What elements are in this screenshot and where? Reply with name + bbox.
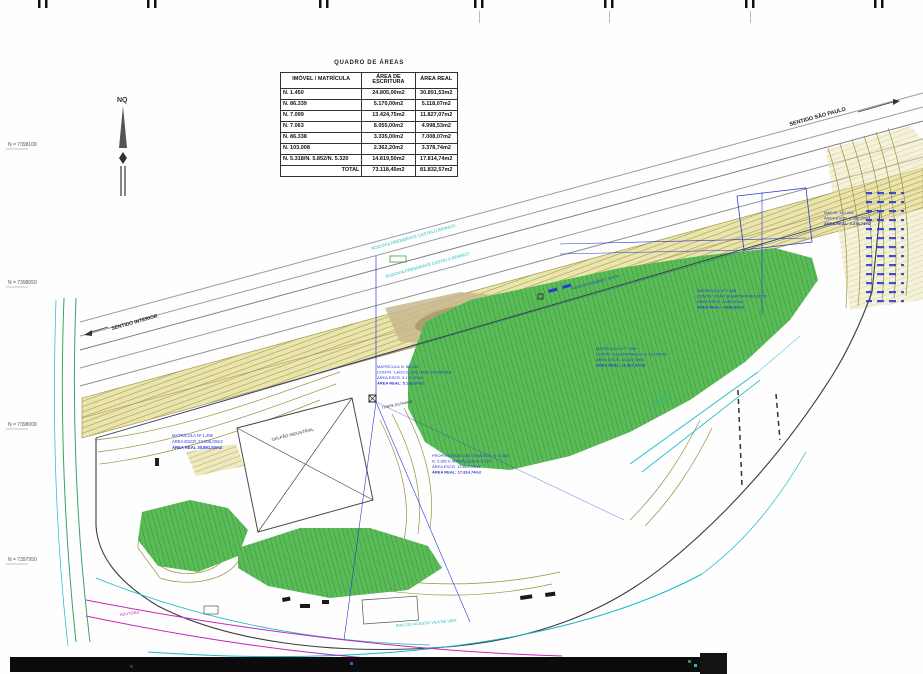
cell-area-real: 11.827,07m2	[415, 110, 458, 121]
cell-matricula: N. 1.450	[281, 88, 362, 99]
svg-text:ÁREA ESCR. 24.805,00m2: ÁREA ESCR. 24.805,00m2	[172, 439, 223, 444]
svg-text:MATRÍCULA N.º 7.099: MATRÍCULA N.º 7.099	[596, 346, 637, 351]
plan-sheet: N = 7398100 N = 7398050 N = 7398000 N = …	[0, 0, 923, 674]
column-header: ÁREA DE ESCRITURA	[362, 73, 415, 89]
artifact-speck	[350, 662, 353, 665]
n-coordinate-label: N = 7398050	[8, 280, 37, 286]
table-row: N. 86.338 3.335,00m2 7.008,07m2	[281, 132, 458, 143]
artifact-speck	[688, 660, 691, 663]
scan-artifact-stub	[700, 653, 727, 674]
cell-area-escritura: 3.335,00m2	[362, 132, 415, 143]
svg-text:ÁREA REAL: 11.827,07m2: ÁREA REAL: 11.827,07m2	[596, 363, 646, 368]
svg-text:ÁREA ESCR. 13.424,75m2: ÁREA ESCR. 13.424,75m2	[596, 357, 645, 362]
svg-text:CONTR. 'JOÃO GUARITA RIVELATTO: CONTR. 'JOÃO GUARITA RIVELATTO'	[697, 294, 767, 299]
svg-text:MATRÍCULA N. 86.339: MATRÍCULA N. 86.339	[377, 364, 419, 369]
column-header: IMÓVEL / MATRÍCULA	[281, 73, 362, 89]
n-coordinate-label: N = 7398100	[8, 142, 37, 148]
svg-text:ÁREA ESCR. 5.170,00m2: ÁREA ESCR. 5.170,00m2	[377, 375, 424, 380]
cell-area-escritura: 2.362,20m2	[362, 143, 415, 154]
table-row: N. 5.318/N. 5.852/N. 5.320 14.819,50m2 1…	[281, 154, 458, 165]
table-header-row: IMÓVEL / MATRÍCULA ÁREA DE ESCRITURA ÁRE…	[281, 73, 458, 89]
cell-area-escritura: 8.055,00m2	[362, 121, 415, 132]
svg-text:ÁREA ESCR. 14.819,50m2: ÁREA ESCR. 14.819,50m2	[432, 464, 481, 469]
cell-total-escritura: 73.118,45m2	[362, 165, 415, 176]
areas-table: QUADRO DE ÁREAS IMÓVEL / MATRÍCULA ÁREA …	[280, 60, 458, 177]
svg-text:MATRÍCULA Nº 7.063: MATRÍCULA Nº 7.063	[697, 288, 737, 293]
cell-area-real: 3.378,74m2	[415, 143, 458, 154]
cell-matricula: N. 103.008	[281, 143, 362, 154]
n-coordinate-label: N = 7398000	[8, 422, 37, 428]
table-row: N. 7.099 13.424,75m2 11.827,07m2	[281, 110, 458, 121]
table-row: N. 1.450 24.805,00m2 30.891,53m2	[281, 88, 458, 99]
cell-area-real: 7.008,07m2	[415, 132, 458, 143]
svg-text:MATRÍCULA Nº 1.450: MATRÍCULA Nº 1.450	[172, 433, 214, 438]
cell-area-escritura: 24.805,00m2	[362, 88, 415, 99]
n-coordinate-label: N = 7397950	[8, 557, 37, 563]
cell-area-escritura: 14.819,50m2	[362, 154, 415, 165]
north-label: NQ	[117, 97, 128, 104]
cell-area-real: 5.118,07m2	[415, 99, 458, 110]
svg-text:ÁREA ESCR. 2.362,20m2: ÁREA ESCR. 2.362,20m2	[824, 216, 871, 221]
svg-text:ÁREA REAL: 3.378,74m2: ÁREA REAL: 3.378,74m2	[824, 221, 872, 226]
cell-total-real: 81.832,57m2	[415, 165, 458, 176]
table-row: N. 86.339 5.170,00m2 5.118,07m2	[281, 99, 458, 110]
elevation-tick-column	[866, 186, 904, 308]
scan-artifact-bar	[10, 657, 702, 672]
svg-text:PROPRIEDADE DAS TRANSCR. N. 5.: PROPRIEDADE DAS TRANSCR. N. 5.318,	[432, 453, 509, 458]
cell-area-real: 4.998,53m2	[415, 121, 458, 132]
table-row: N. 103.008 2.362,20m2 3.378,74m2	[281, 143, 458, 154]
column-header: ÁREA REAL	[415, 73, 458, 89]
artifact-speck	[130, 665, 133, 668]
table-row: N. 7.063 8.055,00m2 4.998,53m2	[281, 121, 458, 132]
cell-matricula: N. 7.063	[281, 121, 362, 132]
cell-area-real: 17.814,74m2	[415, 154, 458, 165]
cell-matricula: N. 86.338	[281, 132, 362, 143]
svg-text:ÁREA ESCR. 8.055,00m2: ÁREA ESCR. 8.055,00m2	[697, 299, 744, 304]
svg-text:MAT. N. 103.008: MAT. N. 103.008	[824, 210, 854, 215]
svg-text:CONTR. 'ELETROPAULO' E 'OUTROS: CONTR. 'ELETROPAULO' E 'OUTROS'	[596, 352, 667, 357]
svg-text:ÁREA REAL: 5.118,07m2: ÁREA REAL: 5.118,07m2	[377, 381, 425, 386]
areas-table-title: QUADRO DE ÁREAS	[280, 60, 458, 66]
table-total-row: TOTAL 73.118,45m2 81.832,57m2	[281, 165, 458, 176]
cell-area-real: 30.891,53m2	[415, 88, 458, 99]
svg-text:ÁREA REAL: 4.998,53m2: ÁREA REAL: 4.998,53m2	[697, 305, 745, 310]
svg-text:ÁREA REAL: 17.814,74m2: ÁREA REAL: 17.814,74m2	[432, 470, 482, 475]
cell-total-label: TOTAL	[281, 165, 362, 176]
svg-text:ÁREA REAL 30.891,53m2: ÁREA REAL 30.891,53m2	[172, 445, 223, 450]
cell-area-escritura: 13.424,75m2	[362, 110, 415, 121]
site-plan-drawing: N = 7398100 N = 7398050 N = 7398000 N = …	[0, 0, 923, 674]
cell-matricula: N. 5.318/N. 5.852/N. 5.320	[281, 154, 362, 165]
cell-matricula: N. 7.099	[281, 110, 362, 121]
cell-matricula: N. 86.339	[281, 99, 362, 110]
svg-text:CONTR. 'LAGO ELIAS / MAT. DIVE: CONTR. 'LAGO ELIAS / MAT. DIVERSAS'	[377, 370, 452, 375]
svg-text:N. 5.852 E MATRÍCULA N. 5.320: N. 5.852 E MATRÍCULA N. 5.320	[432, 459, 492, 464]
artifact-speck	[694, 664, 697, 667]
cell-area-escritura: 5.170,00m2	[362, 99, 415, 110]
